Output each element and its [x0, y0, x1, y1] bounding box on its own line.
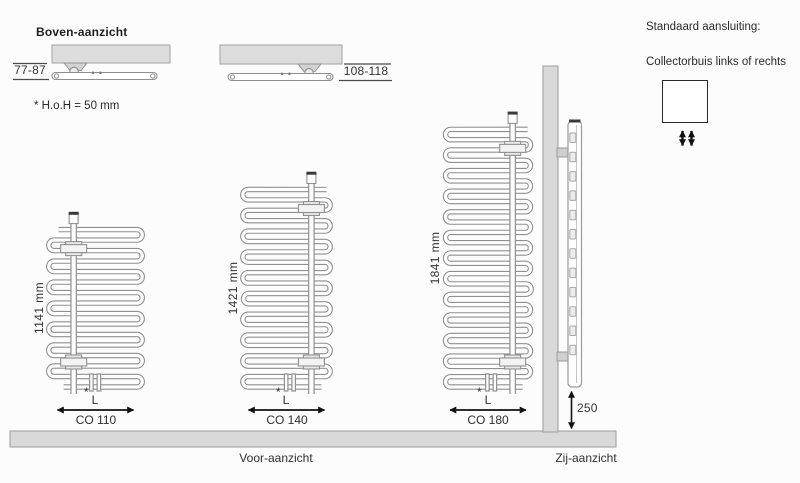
hoh-note: * H.o.H = 50 mm — [34, 100, 119, 113]
top-view-title: Boven-aanzicht — [36, 26, 127, 39]
radiator-height-label: 1141 mm — [32, 282, 46, 334]
footnote-mark: * — [84, 385, 89, 399]
connection-dot — [99, 72, 102, 75]
technical-drawing — [0, 0, 800, 483]
tube-end-cap — [54, 74, 58, 78]
tube-end-segment — [570, 326, 576, 336]
collector-cap — [508, 112, 518, 115]
wall-section — [220, 45, 342, 64]
collector-cap — [69, 212, 79, 215]
wall-bracket — [557, 352, 569, 361]
diagram-canvas: Boven-aanzicht 77-87 108-118 * H.o.H = 5… — [0, 0, 800, 483]
connection-flow-arrows — [683, 131, 692, 146]
connection-title: Standaard aansluiting: — [646, 21, 760, 34]
connection-subtitle: Collectorbuis links of rechts — [646, 56, 786, 69]
model-label: CO 110 — [76, 414, 116, 427]
tube-end-segment — [570, 345, 576, 355]
tube-end-cap — [327, 75, 331, 79]
collector-connection-box-icon — [662, 80, 708, 123]
valve-connection — [486, 374, 490, 391]
tube-end-cap — [151, 74, 155, 78]
wall — [543, 66, 558, 432]
radiator-serpentine — [446, 112, 532, 394]
radiator-serpentine — [243, 172, 330, 394]
collector-stub — [508, 113, 517, 123]
tube-end-segment — [570, 230, 576, 240]
connection-dot — [92, 72, 95, 75]
tube-end-segment — [570, 172, 576, 182]
front-view-caption: Voor-aanzicht — [239, 452, 312, 465]
model-label: CO 140 — [266, 414, 307, 427]
tube-end-segment — [570, 249, 576, 258]
valve-connection — [90, 374, 94, 391]
width-label: L — [92, 394, 99, 407]
tube-end-segment — [570, 287, 576, 297]
collector-cap — [306, 172, 316, 175]
radiator-top-profile — [52, 73, 157, 80]
valve-connection — [284, 374, 288, 391]
wall-bracket — [557, 148, 569, 157]
connection-dot — [288, 73, 291, 76]
tube-end-segment — [570, 152, 576, 162]
radiator-height-label: 1421 mm — [226, 262, 240, 315]
tube-end-segment — [570, 307, 576, 317]
side-profile-top-cap — [569, 120, 581, 123]
front-view-radiators — [49, 112, 531, 394]
radiator-serpentine — [49, 212, 143, 394]
footnote-mark: * — [477, 385, 482, 399]
tube-end-segment — [570, 133, 576, 143]
tube-end-segment — [570, 210, 576, 220]
valve-connection — [97, 374, 101, 391]
wall-section — [52, 45, 170, 63]
model-label: CO 180 — [467, 414, 508, 427]
tube-end-segment — [570, 191, 576, 201]
connection-dot — [281, 73, 284, 76]
valve-connection — [292, 374, 296, 391]
collector-stub — [69, 214, 78, 224]
valve-connection — [493, 374, 497, 391]
collector-stub — [307, 174, 316, 184]
radiator-top-profile — [228, 74, 333, 81]
radiator-height-label: 1841 mm — [428, 232, 442, 285]
side-view-caption: Zij-aanzicht — [555, 452, 616, 465]
floor — [10, 431, 616, 447]
footnote-mark: * — [276, 385, 281, 399]
tube-end-cap — [230, 75, 234, 79]
dimension-label-left: 77-87 — [14, 64, 46, 77]
width-label: L — [283, 394, 290, 407]
clearance-value: 250 — [577, 402, 598, 415]
tube-end-segment — [570, 268, 576, 278]
width-label: L — [485, 394, 492, 407]
dimension-label-right: 108-118 — [344, 65, 389, 78]
